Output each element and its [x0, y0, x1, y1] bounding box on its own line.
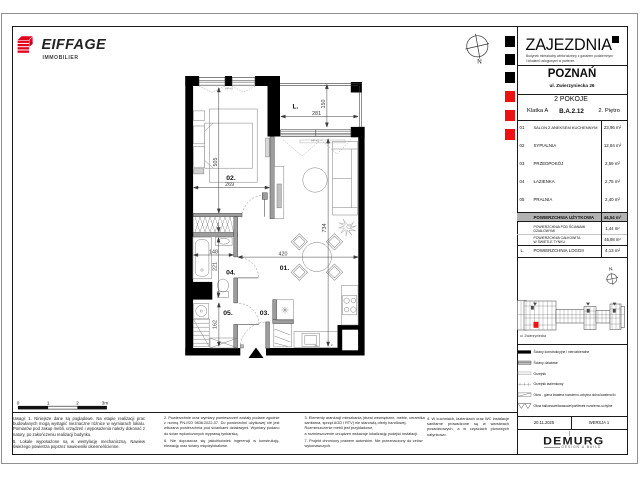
svg-text:N: N	[477, 59, 481, 66]
svg-text:z: z	[331, 343, 333, 347]
svg-text:04.: 04.	[226, 270, 236, 277]
svg-text:05.: 05.	[223, 310, 233, 317]
svg-text:HP+0: HP+0	[225, 87, 233, 91]
svg-text:01.: 01.	[280, 265, 290, 272]
svg-text:221: 221	[212, 262, 218, 271]
svg-text:HP+0: HP+0	[311, 139, 319, 143]
svg-text:2: 2	[76, 400, 79, 405]
svg-text:02.: 02.	[226, 175, 236, 182]
svg-text:ul. Zwierzyniecka: ul. Zwierzyniecka	[520, 334, 546, 338]
svg-text:162: 162	[213, 320, 219, 329]
svg-text:734: 734	[322, 224, 328, 233]
svg-text:150: 150	[321, 100, 327, 109]
svg-text:269: 269	[225, 182, 234, 188]
svg-text:L.: L.	[292, 104, 298, 111]
svg-text:281: 281	[312, 111, 321, 117]
svg-text:03.: 03.	[260, 310, 270, 317]
svg-text:1: 1	[47, 400, 50, 405]
svg-text:N: N	[609, 266, 614, 273]
svg-text:0: 0	[17, 400, 20, 405]
svg-text:420: 420	[279, 251, 288, 257]
svg-text:3m: 3m	[102, 400, 109, 405]
svg-text:505: 505	[213, 158, 219, 167]
svg-text:148: 148	[209, 249, 218, 255]
